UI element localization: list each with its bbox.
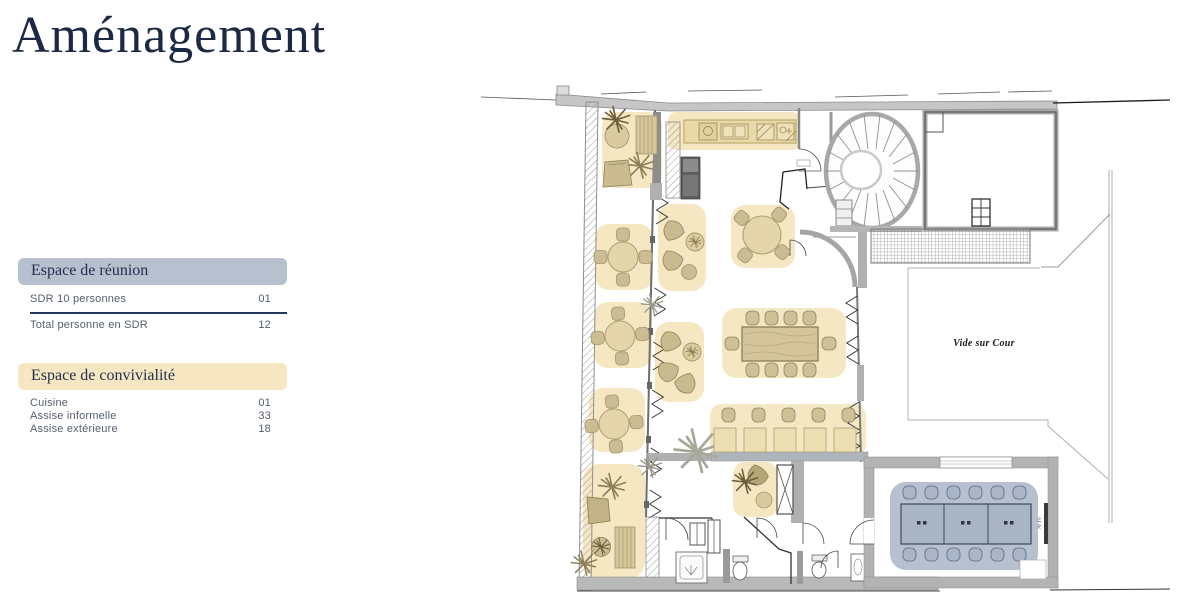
shelving-x-cabinet xyxy=(777,465,793,514)
glass-roof-hatched xyxy=(871,229,1030,263)
divider xyxy=(30,312,287,314)
panel-espace-reunion: Espace de réunion SDR 10 personnes 01 To… xyxy=(18,258,287,333)
toilet-2 xyxy=(812,555,827,578)
window-grid-object xyxy=(972,199,990,226)
row-sdr-10-personnes: SDR 10 personnes 01 xyxy=(30,292,271,307)
row-value: 01 xyxy=(258,292,271,307)
toilet-1 xyxy=(733,556,748,580)
floor-plan: 70' TV Vide sur Cour xyxy=(480,85,1200,596)
kitchen-counter xyxy=(684,120,796,143)
row-total-sdr: Total personne en SDR 12 xyxy=(30,318,271,333)
tv-label: 70' TV xyxy=(1037,516,1042,529)
row-label: Assise extérieure xyxy=(30,423,118,436)
row-value: 33 xyxy=(258,410,271,423)
row-assise-informelle: Assise informelle 33 xyxy=(30,410,271,423)
shower xyxy=(676,552,707,583)
row-cuisine: Cuisine 01 xyxy=(30,397,271,410)
row-value: 18 xyxy=(258,423,271,436)
spiral-staircase xyxy=(826,114,922,232)
coffee-machine-icon xyxy=(699,123,717,140)
panel-convivialite-header: Espace de convivialité xyxy=(18,363,287,390)
panel-reunion-header: Espace de réunion xyxy=(18,258,287,285)
row-label: Cuisine xyxy=(30,397,68,410)
sdr-tables xyxy=(901,504,1031,544)
courtyard-label: Vide sur Cour xyxy=(953,338,1015,349)
panel-espace-convivialite: Espace de convivialité Cuisine 01 Assise… xyxy=(18,363,287,436)
row-value: 12 xyxy=(258,318,271,333)
sdr-window xyxy=(940,457,1012,468)
page: Aménagement Espace de réunion SDR 10 per… xyxy=(0,0,1200,596)
row-label: Total personne en SDR xyxy=(30,318,148,333)
row-assise-exterieure: Assise extérieure 18 xyxy=(30,423,271,436)
tv-screen xyxy=(1044,503,1048,544)
row-label: SDR 10 personnes xyxy=(30,292,126,307)
row-value: 01 xyxy=(258,397,271,410)
row-label: Assise informelle xyxy=(30,410,117,423)
page-title: Aménagement xyxy=(12,6,326,65)
